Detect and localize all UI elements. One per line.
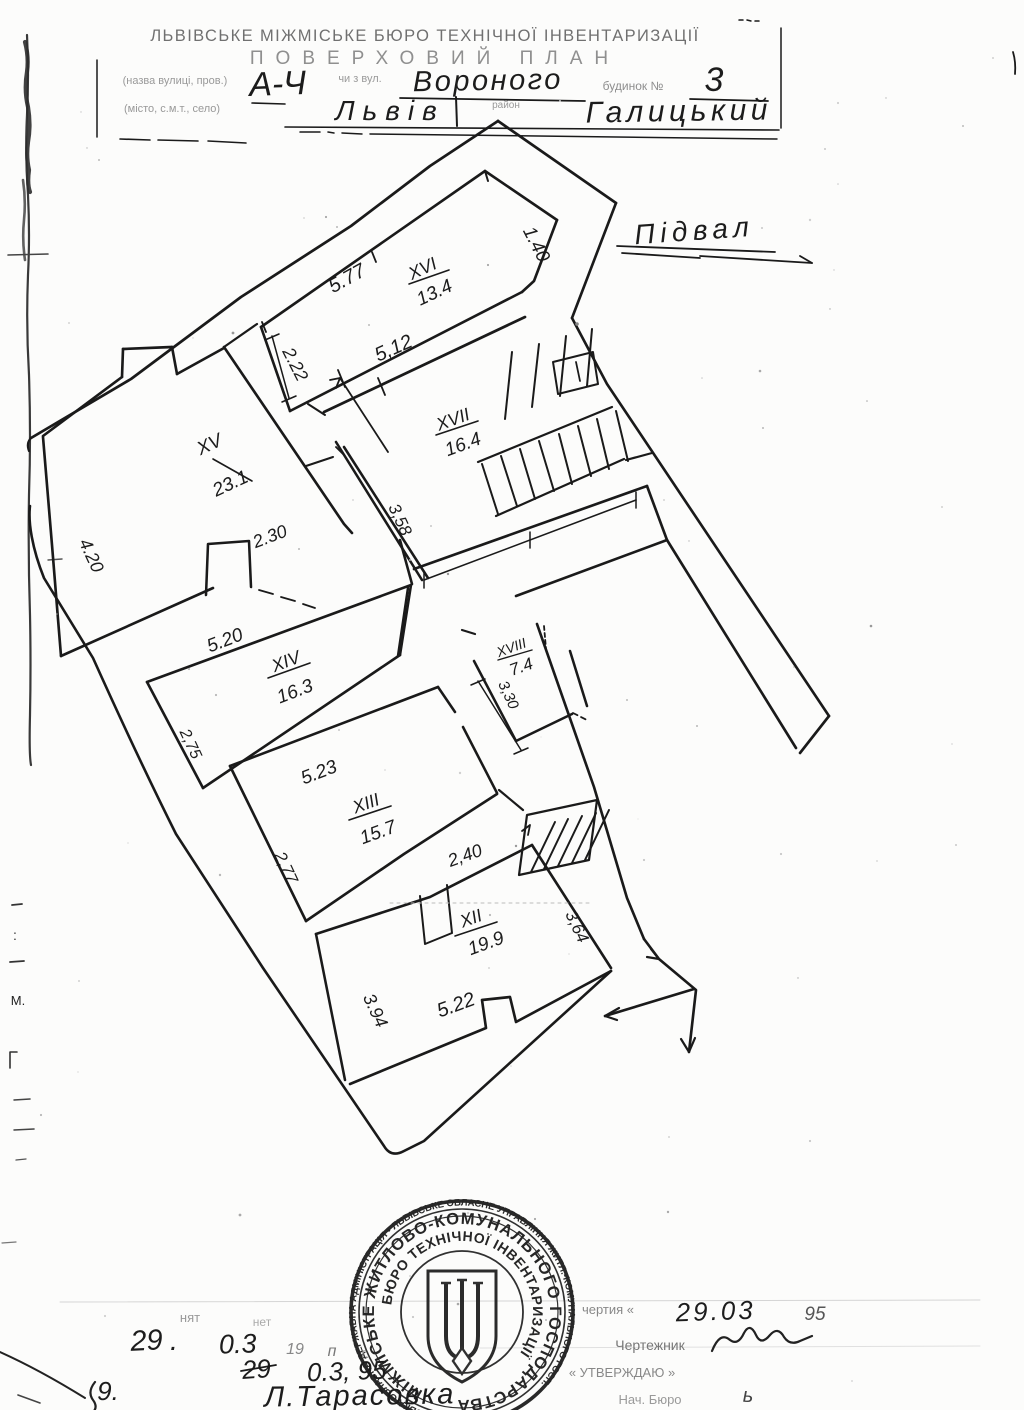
svg-text:А-Ч: А-Ч [247,64,307,104]
svg-text:95: 95 [804,1304,826,1325]
svg-text::: : [13,927,17,943]
svg-text:нет: нет [253,1315,272,1329]
svg-text:Львів: Львів [333,95,444,126]
svg-text:М.: М. [11,993,25,1008]
svg-text:Галицький: Галицький [585,93,772,129]
svg-text:29.03: 29.03 [674,1295,756,1328]
svg-text:Л.Тарасовка: Л.Тарасовка [262,1378,456,1410]
svg-text:г.: г. [361,1345,368,1361]
svg-text:чи з вул.: чи з вул. [338,73,381,85]
svg-text:(назва вулиці, пров.): (назва вулиці, пров.) [123,75,228,87]
svg-text:чертия «: чертия « [582,1302,634,1317]
svg-text:29: 29 [129,1324,164,1358]
svg-text:19: 19 [286,1341,304,1358]
svg-text:Чертежник: Чертежник [615,1337,685,1353]
svg-text:ь: ь [743,1385,754,1407]
svg-text:нят: нят [180,1310,200,1325]
svg-text:(місто, с.м.т., село): (місто, с.м.т., село) [124,103,220,115]
svg-text:будинок №: будинок № [603,79,664,93]
svg-text:.: . [170,1325,178,1357]
svg-text:ЛЬВІВСЬКЕ МІЖМІСЬКЕ БЮРО ТЕ: ЛЬВІВСЬКЕ МІЖМІСЬКЕ БЮРО ТЕХНІЧНОЇ ІНВЕН… [150,27,699,45]
svg-text:Нач. Бюро: Нач. Бюро [618,1392,681,1407]
svg-text:9.: 9. [97,1376,119,1406]
svg-text:Вороного: Вороного [413,64,563,99]
svg-text:район: район [492,100,520,111]
svg-text:« УТВЕРЖДАЮ »: « УТВЕРЖДАЮ » [569,1365,675,1380]
